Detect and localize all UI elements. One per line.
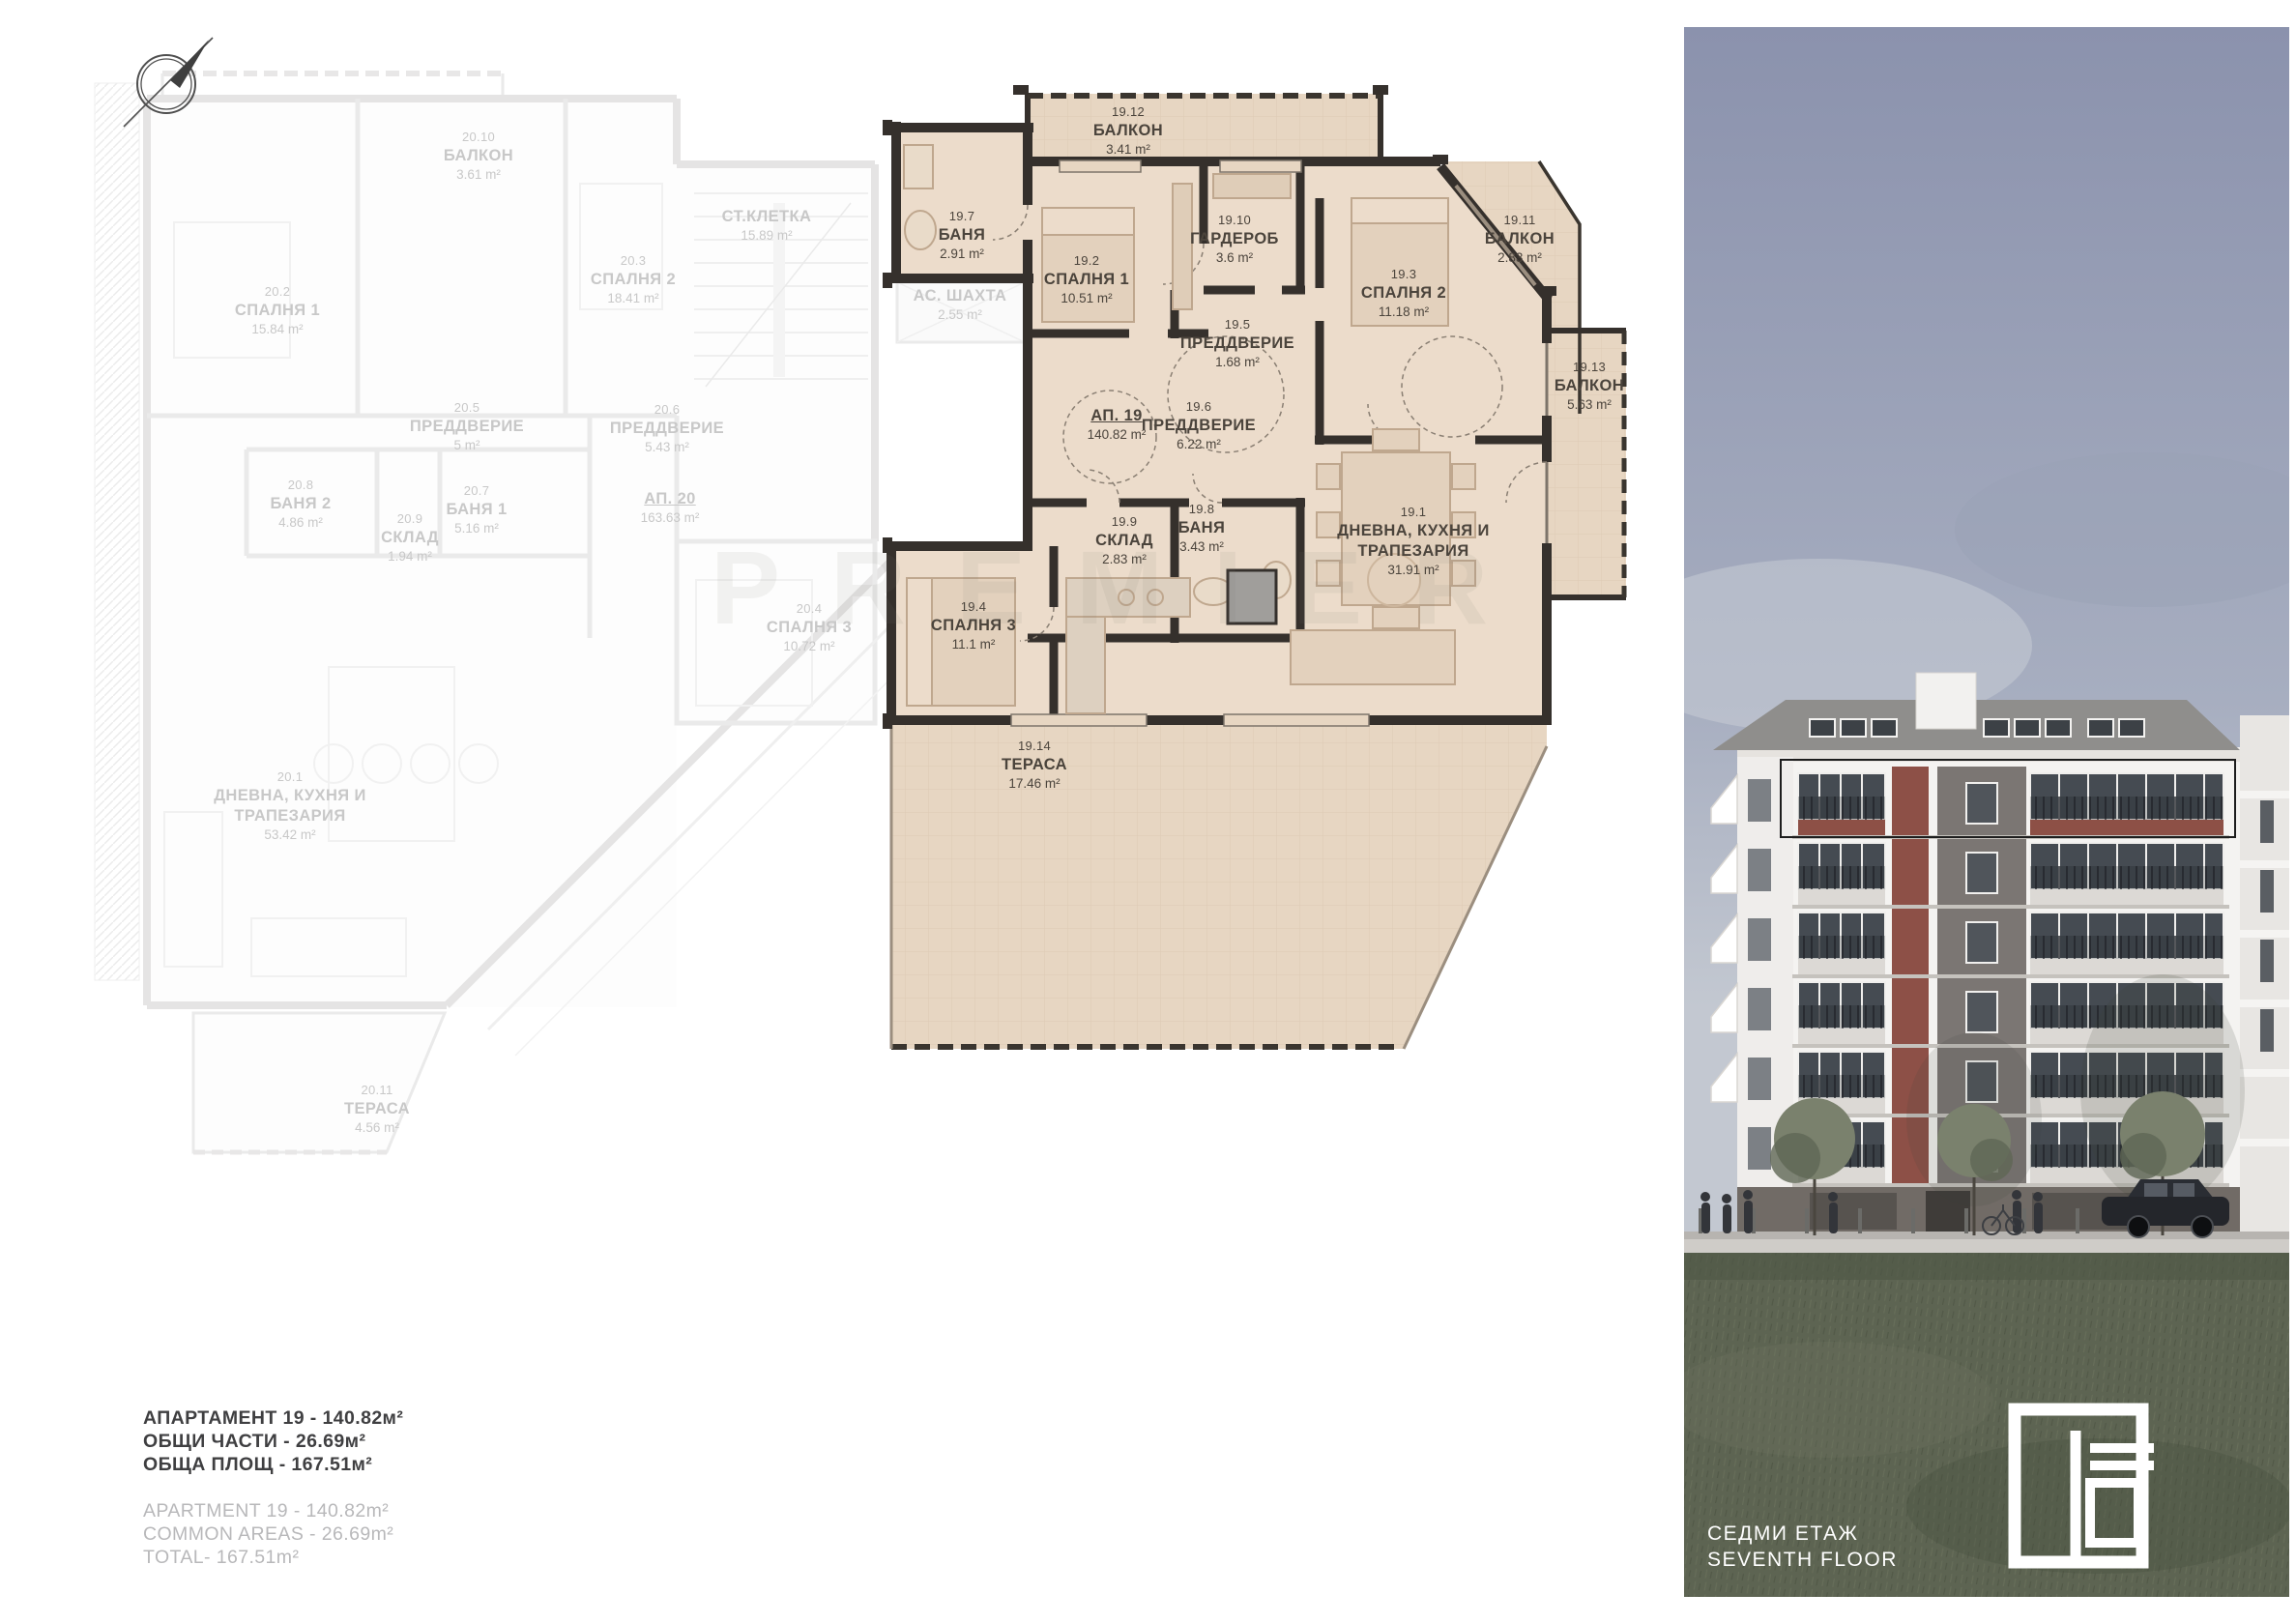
summary-bulgarian: АПАРТАМЕНТ 19 - 140.82м² ОБЩИ ЧАСТИ - 26… — [143, 1406, 403, 1476]
room-label: 19.3СПАЛНЯ 211.18 m² — [1361, 267, 1446, 320]
floor-plan-sheet: PREMIER 20.10БАЛКОН3.61 m²20.2СПАЛНЯ 115… — [0, 0, 2296, 1623]
summary-line: ОБЩА ПЛОЩ - 167.51м² — [143, 1453, 403, 1476]
room-label: 20.1ДНЕВНА, КУХНЯ И ТРАПЕЗАРИЯ53.42 m² — [214, 769, 366, 843]
room-label: 20.9СКЛАД1.94 m² — [381, 511, 439, 565]
room-label: АП. 20163.63 m² — [641, 489, 700, 526]
room-label: АС. ШАХТА2.55 m² — [914, 286, 1007, 323]
room-label: 19.14ТЕРАСА17.46 m² — [1002, 739, 1067, 792]
room-label: 19.9СКЛАД2.83 m² — [1095, 514, 1153, 567]
room-label: СТ.КЛЕТКА15.89 m² — [722, 207, 812, 244]
floor-caption-bg: СЕДМИ ЕТАЖ — [1707, 1522, 1858, 1546]
room-label: 19.1ДНЕВНА, КУХНЯ И ТРАПЕЗАРИЯ31.91 m² — [1337, 505, 1490, 578]
floor-caption-en: SEVENTH FLOOR — [1707, 1549, 1898, 1572]
room-label: 20.11ТЕРАСА4.56 m² — [344, 1083, 410, 1136]
room-label: 20.6ПРЕДДВЕРИЕ5.43 m² — [610, 402, 724, 455]
room-label: 20.7БАНЯ 15.16 m² — [446, 483, 507, 536]
room-label: 20.5ПРЕДДВЕРИЕ5 m² — [410, 400, 524, 453]
summary-line: ОБЩИ ЧАСТИ - 26.69м² — [143, 1430, 403, 1453]
room-label: 19.6ПРЕДДВЕРИЕ6.22 m² — [1142, 399, 1256, 452]
room-label: 19.12БАЛКОН3.41 m² — [1093, 104, 1163, 158]
summary-line: АПАРТАМЕНТ 19 - 140.82м² — [143, 1406, 403, 1430]
room-label: 20.10БАЛКОН3.61 m² — [444, 130, 513, 183]
summary-english: APARTMENT 19 - 140.82m² COMMON AREAS - 2… — [143, 1499, 393, 1569]
room-label: 19.7БАНЯ2.91 m² — [939, 209, 986, 262]
summary-line: COMMON AREAS - 26.69m² — [143, 1522, 393, 1546]
room-label: 19.13БАЛКОН5.63 m² — [1555, 360, 1624, 413]
room-label: 20.3СПАЛНЯ 218.41 m² — [591, 253, 676, 306]
room-label: 19.11БАЛКОН2.83 m² — [1485, 213, 1555, 266]
room-label: АП. 19140.82 m² — [1088, 406, 1147, 443]
room-label: 19.2СПАЛНЯ 110.51 m² — [1044, 253, 1129, 306]
building-render-panel: СЕДМИ ЕТАЖ SEVENTH FLOOR — [1684, 27, 2289, 1597]
room-label: 20.4СПАЛНЯ 310.72 m² — [767, 601, 852, 654]
room-label: 20.2СПАЛНЯ 115.84 m² — [235, 284, 320, 337]
room-label: 19.5ПРЕДДВЕРИЕ1.68 m² — [1180, 317, 1294, 370]
summary-line: APARTMENT 19 - 140.82m² — [143, 1499, 393, 1522]
room-label: 19.4СПАЛНЯ 311.1 m² — [931, 599, 1016, 652]
room-label: 19.10ГАРДЕРОБ3.6 m² — [1190, 213, 1279, 266]
room-label: 20.8БАНЯ 24.86 m² — [270, 478, 331, 531]
building-render — [1684, 27, 2289, 1597]
room-label: 19.8БАНЯ3.43 m² — [1178, 502, 1226, 555]
summary-line: TOTAL- 167.51m² — [143, 1546, 393, 1569]
